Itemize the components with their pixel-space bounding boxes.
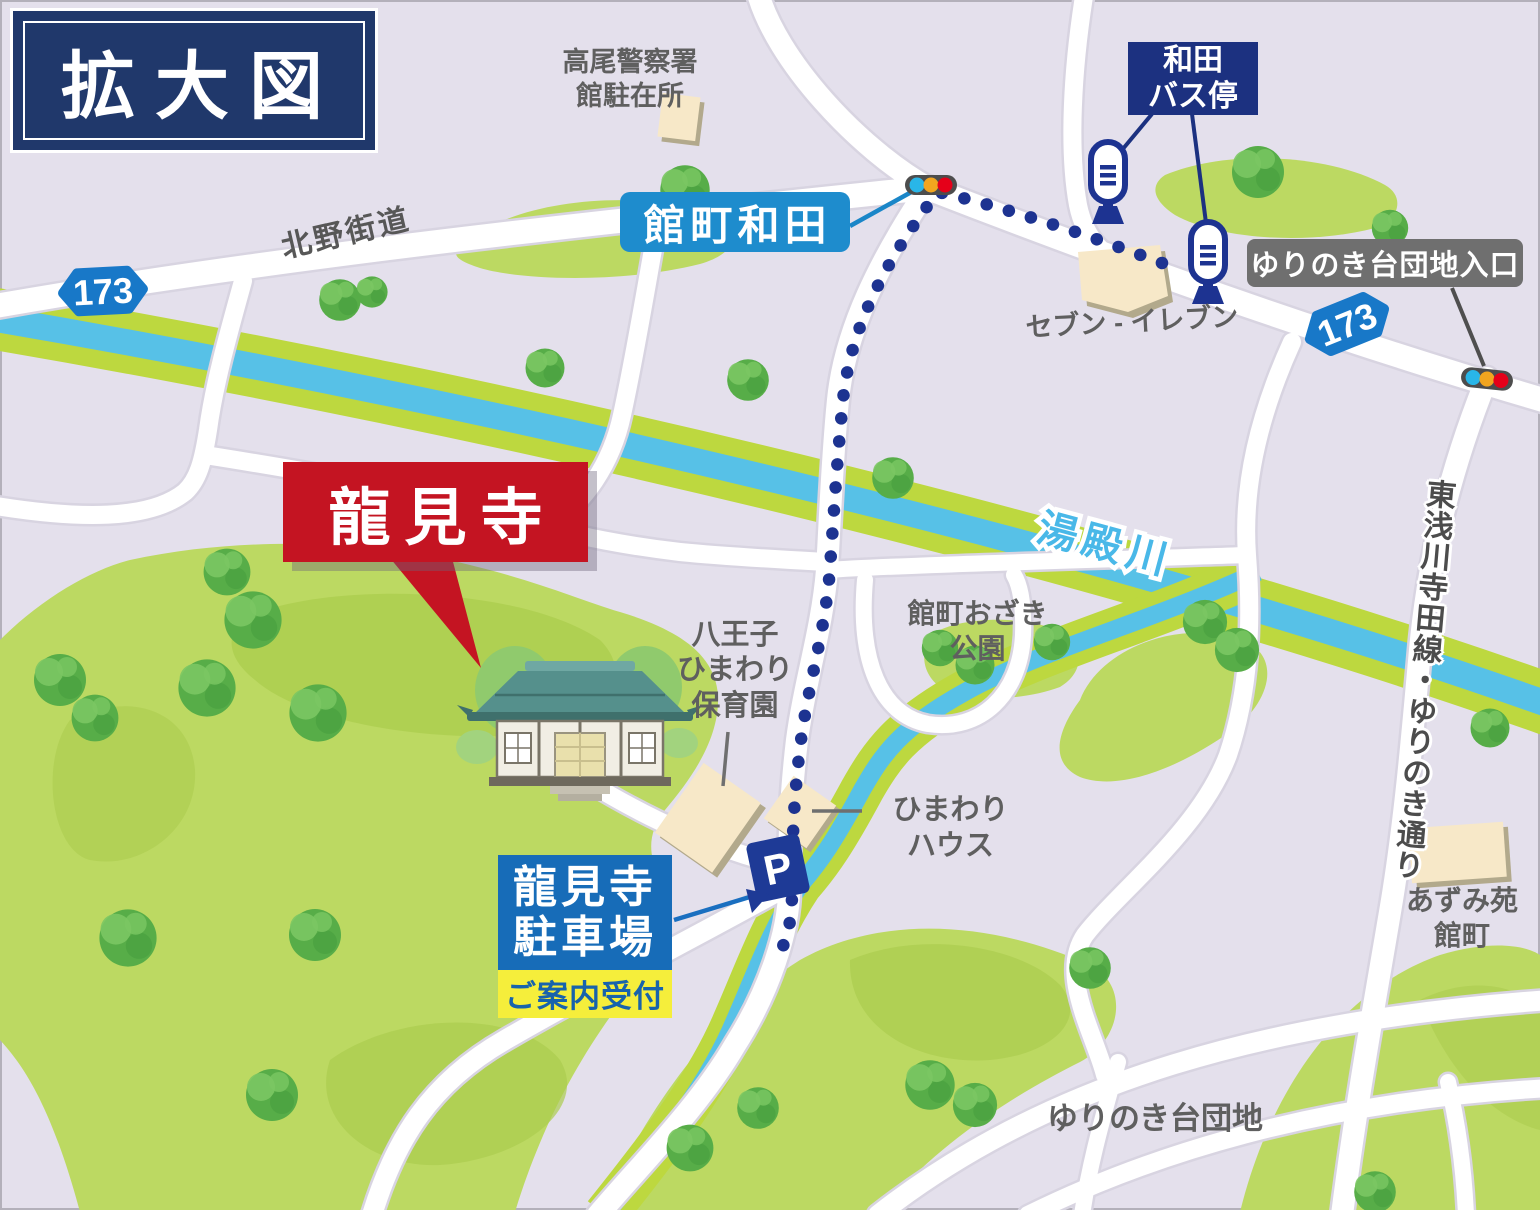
bus-stop-icon-west	[1091, 142, 1125, 224]
traffic-signal-tatemachi-wada	[905, 175, 957, 195]
svg-text:173: 173	[72, 269, 134, 313]
ryukenji-parking-label: 龍見寺 駐車場 ご案内受付	[498, 855, 672, 1013]
map-title-box: 拡大図	[10, 8, 378, 153]
enlarged-access-map: P 173 173 湯殿川 拡大図 高尾警察署 館駐在所 和田 バス停 館町和田…	[0, 0, 1540, 1210]
reception-badge: ご案内受付	[498, 970, 672, 1018]
yurinoki-entrance-label: ゆりのき台団地入口	[1247, 239, 1523, 287]
tatemachi-wada-label: 館町和田	[620, 192, 850, 252]
map-title: 拡大図	[23, 21, 365, 140]
ryukenji-temple-label: 龍見寺	[283, 462, 588, 562]
ozaki-park-label: 館町おざき 公園	[885, 596, 1070, 666]
route-173-shield-west: 173	[62, 269, 144, 314]
himawari-house-label: ひまわり ハウス	[878, 792, 1023, 865]
police-station-label: 高尾警察署 館駐在所	[540, 46, 720, 114]
wada-bus-stop-label: 和田 バス停	[1128, 42, 1258, 115]
map-canvas: P 173 173 湯殿川	[0, 0, 1540, 1210]
yurinoki-danchi-label: ゆりのき台団地	[1040, 1100, 1270, 1139]
nursery-label: 八王子 ひまわり 保育園	[655, 618, 815, 724]
